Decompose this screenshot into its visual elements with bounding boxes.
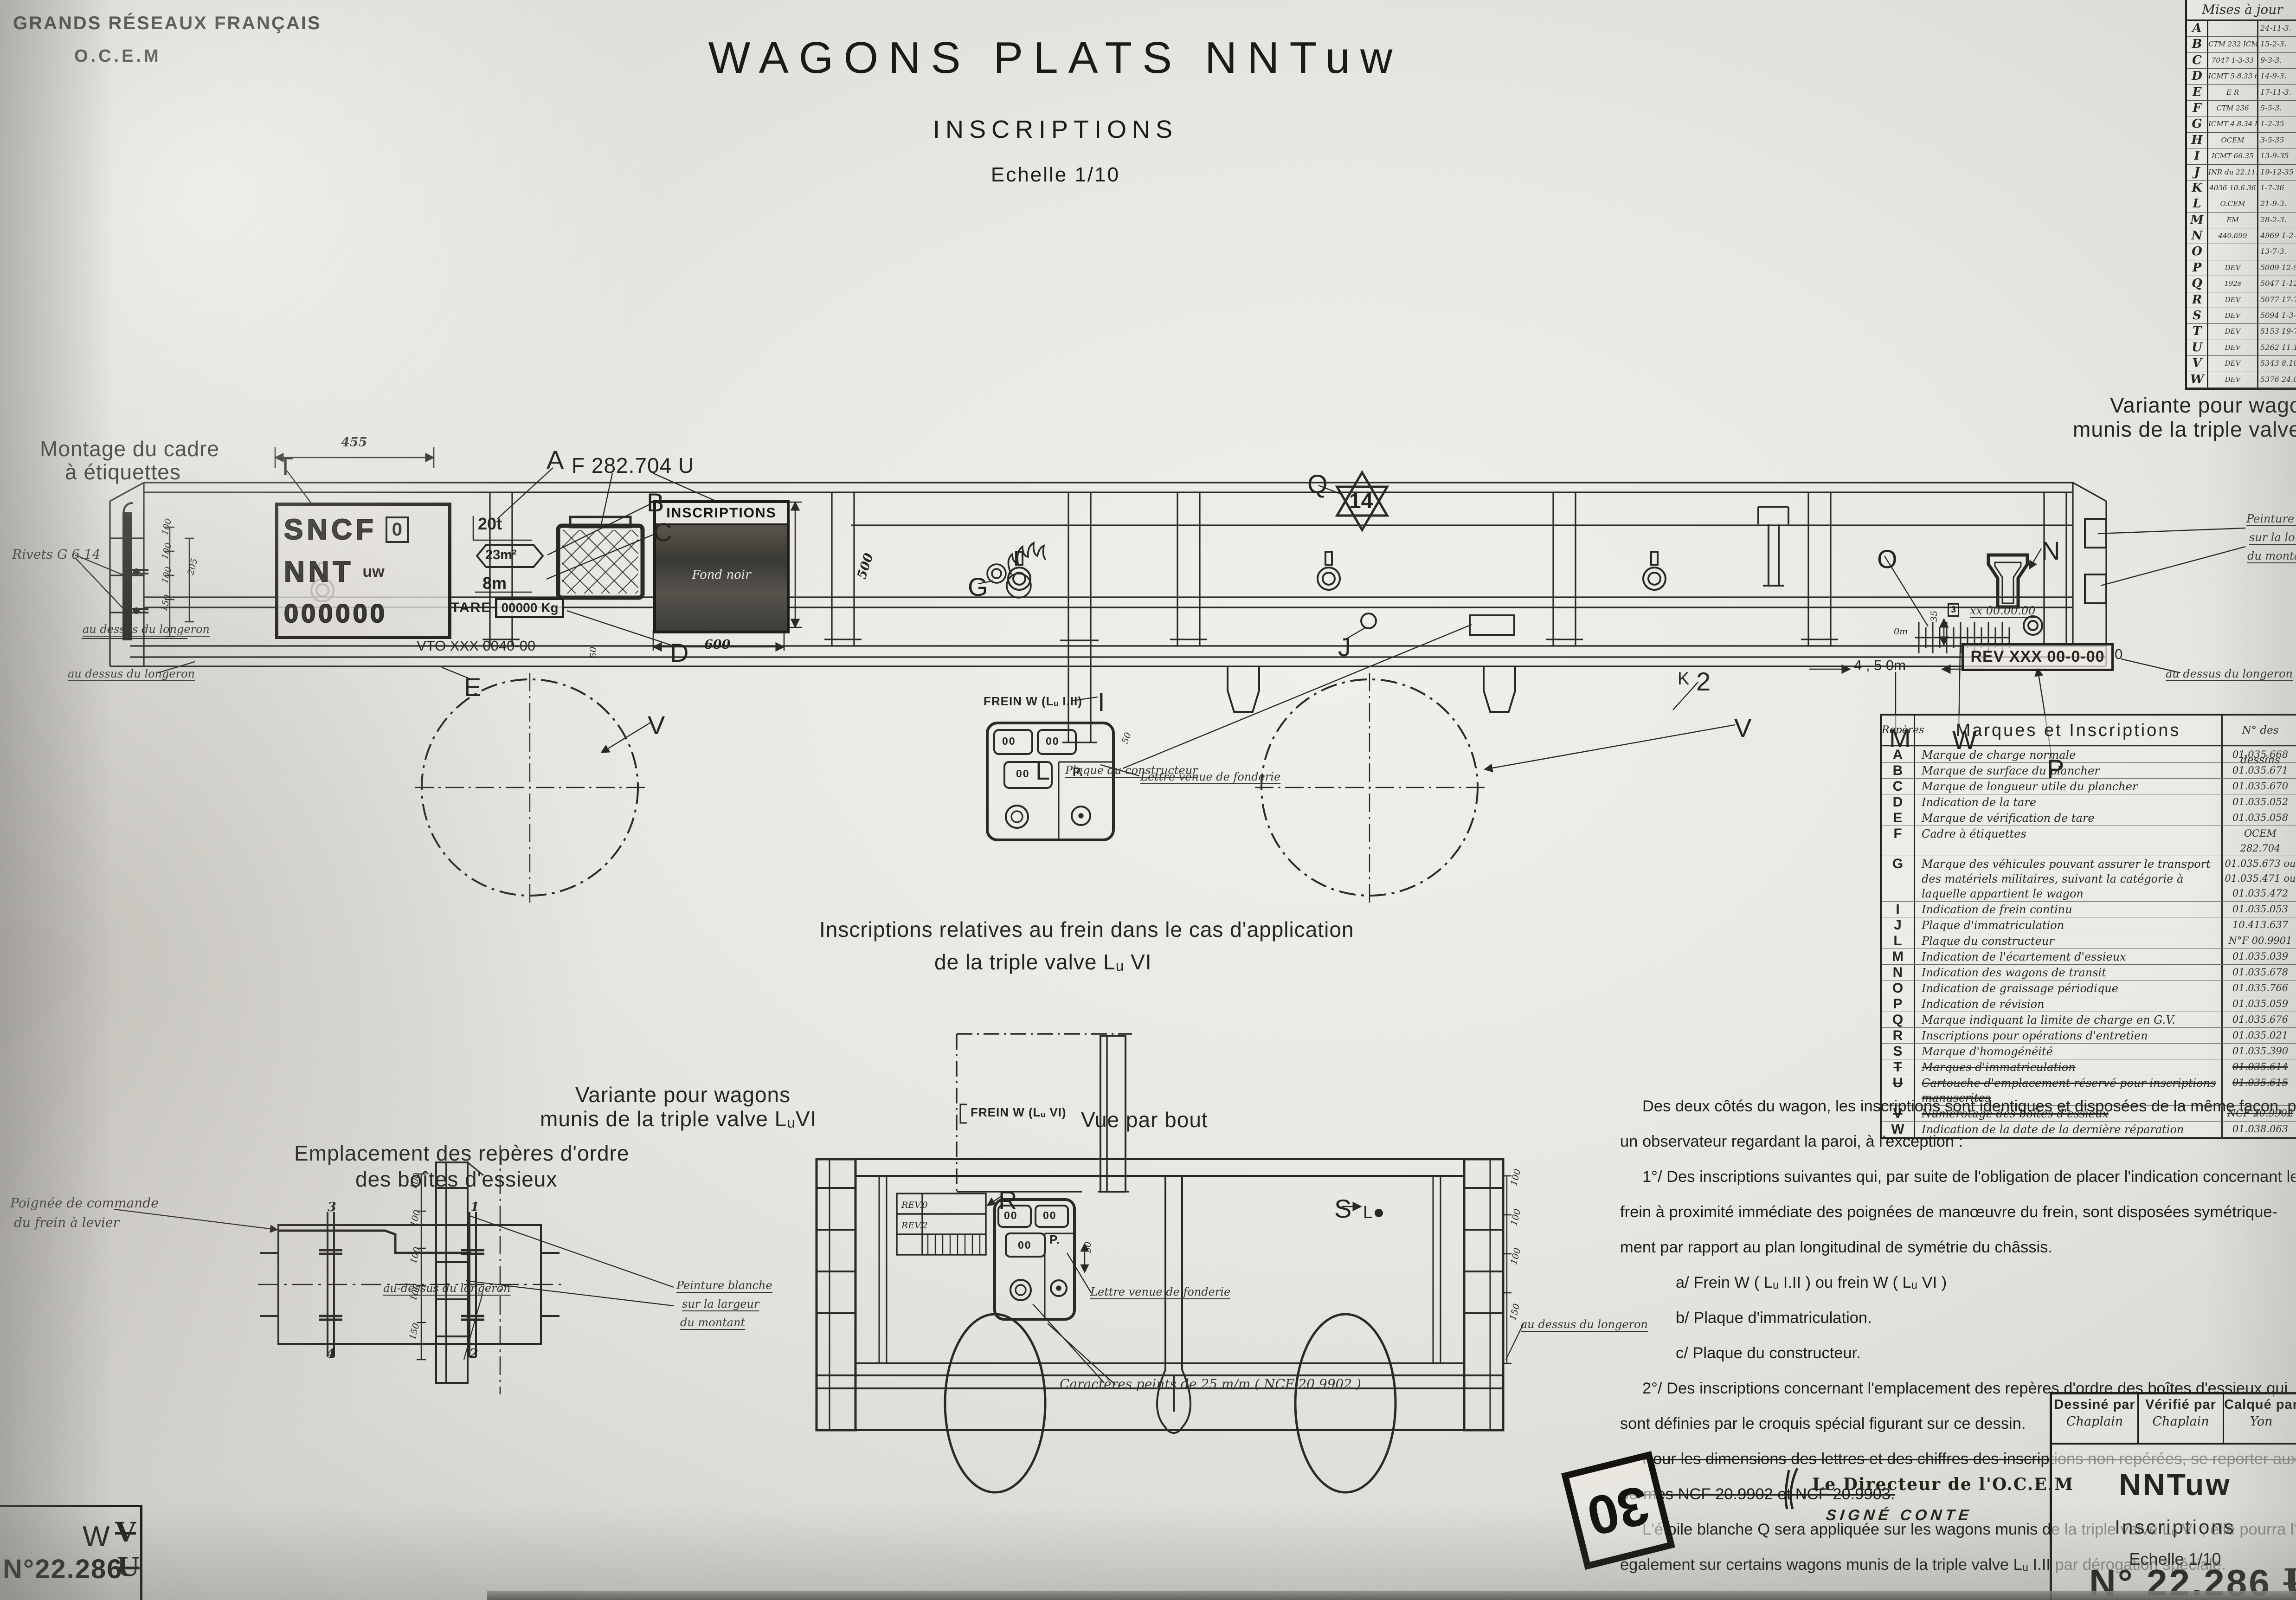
marques-row-label: Indication de l'écartement d'essieux: [1915, 949, 2223, 964]
sheet: GRANDS RÉSEAUX FRANÇAIS O.C.E.M WAGONS P…: [0, 0, 2296, 1600]
annotation-label: sur la largeur: [682, 1297, 759, 1310]
annotation-label: L: [1363, 1203, 1373, 1222]
marques-row-repere: S: [1882, 1044, 1915, 1059]
marques-row-label: Inscriptions pour opérations d'entretien: [1915, 1028, 2223, 1043]
annotation-text: Montage du cadre: [40, 436, 219, 461]
annotation-label: Q: [1307, 469, 1328, 498]
maj-row-date: 13-9-35: [2258, 148, 2296, 164]
annotation-text: 00: [1002, 735, 1016, 748]
marques-row: T Marques d'immatriculation 01.035.614: [1882, 1059, 2296, 1075]
maj-row: E E R 17-11-3.: [2187, 85, 2296, 101]
annotation-label: REV.0: [901, 1200, 928, 1210]
marques-row-repere: C: [1882, 779, 1915, 794]
annotation-label: P.: [1073, 765, 1083, 779]
marques-row: L Plaque du constructeur N°F 00.9901: [1882, 933, 2296, 949]
drawn-by-cell: Dessiné par Chaplain: [2052, 1394, 2139, 1443]
annotation-text: O: [1877, 544, 1897, 574]
org-name: GRANDS RÉSEAUX FRANÇAIS: [13, 13, 322, 34]
annotation-text: REV.0: [901, 1200, 928, 1210]
tare-label: TARE: [451, 600, 491, 616]
marques-row-number: 01.035.039: [2223, 949, 2296, 964]
annotation-text: Peinture blanche: [2246, 512, 2296, 525]
marques-row-number: 01.035.053: [2223, 902, 2296, 917]
marques-row-label: Marque de longueur utile du plancher: [1915, 779, 2223, 794]
annotation-label: 00: [1016, 768, 1030, 780]
maj-row-date: 5077 17-7-3.: [2258, 292, 2296, 308]
marques-row-label: Marque d'homogénéité: [1915, 1044, 2223, 1059]
notes-line: b/ Plaque d'immatriculation.: [1620, 1300, 2296, 1335]
maj-row-letter: Q: [2187, 276, 2208, 291]
maj-row: F CTM 236 5-5-3.: [2187, 101, 2296, 116]
annotation-text: 35: [1929, 611, 1939, 622]
marques-row-repere: P: [1882, 996, 1915, 1012]
annotation-label: FREIN W (Lᵤ VI): [971, 1105, 1067, 1119]
signature-title: Le Directeur de l'O.C.E.M: [1812, 1475, 2074, 1494]
annotation-label: Caractères peints de 25 m/m ( NCF 20.990…: [1060, 1376, 1361, 1392]
annotation-text: N: [2041, 535, 2060, 566]
annotation-text: xx 00.00.00: [1970, 604, 2036, 617]
traced-by-cell: Calqué par Yon: [2224, 1394, 2296, 1443]
marques-row-repere: M: [1882, 949, 1915, 964]
maj-row-date: 5094 1-3-3.: [2258, 308, 2296, 323]
notes-line-text: 1°/ Des inscriptions suivantes qui, par …: [1642, 1168, 2296, 1186]
maj-row-ref: DEV: [2208, 260, 2258, 276]
plate-series: NNT: [284, 555, 354, 588]
annotation-text: 50: [1083, 1242, 1093, 1253]
marques-row-number: 01.035.670: [2223, 779, 2296, 794]
notes-line: Des deux côtés du wagon, les inscription…: [1620, 1089, 2296, 1124]
sncf-plate: SNCF0 NNTuw 000000: [275, 503, 451, 639]
signature-signed: SIGNÉ CONTE: [1825, 1506, 1973, 1524]
marques-row-repere: L: [1882, 933, 1915, 948]
annotation-label: R: [998, 1186, 1017, 1215]
maj-table-body: A 24-11-3. B CTM 232 ICMT 26.1.32 15-2-3…: [2187, 21, 2296, 388]
corner-number-box: W V N°22.286 U: [0, 1505, 142, 1600]
montage-detail: [75, 503, 194, 639]
annotation-text: du montant: [2247, 549, 2296, 562]
maj-row: Q 192s 5047 1-12-3.: [2187, 276, 2296, 292]
annotation-label: au dessus du longeron: [2166, 667, 2293, 680]
annotation-label: E: [464, 672, 481, 702]
marques-row-repere: D: [1882, 794, 1915, 810]
annotation-text: 4 , 5 0m: [1854, 657, 1906, 674]
notes-line: c/ Plaque du constructeur.: [1620, 1335, 2296, 1371]
annotation-label: 14: [1349, 489, 1373, 513]
corner-drawing-number: N°22.286: [3, 1554, 122, 1585]
annotation-text: 00: [1018, 1239, 1032, 1252]
annotation-label: P: [2047, 754, 2064, 783]
annotation-text: 455: [341, 435, 367, 450]
annotation-label: 455: [341, 435, 367, 450]
marques-row-repere: O: [1882, 981, 1915, 996]
maj-row-letter: M: [2187, 213, 2208, 228]
maj-row-date: 3-5-35: [2258, 133, 2296, 148]
maj-row-ref: 440.699: [2208, 228, 2258, 244]
inscriptions-panel-note: Fond noir: [656, 568, 787, 582]
marques-row: D Indication de la tare 01.035.052: [1882, 794, 2296, 810]
annotation-text: V: [1734, 713, 1751, 743]
annotation-text: Caractères peints de 25 m/m ( NCF 20.990…: [1060, 1376, 1361, 1392]
notes-line-text: b/ Plaque d'immatriculation.: [1676, 1309, 1872, 1327]
maj-row-ref: [2208, 21, 2258, 36]
annotation-text: Poignée de commande: [10, 1195, 159, 1211]
marques-row: O Indication de graissage périodique 01.…: [1882, 981, 2296, 996]
marques-row-number: 01.035.058: [2223, 810, 2296, 826]
annotation-label: 3: [328, 1200, 336, 1214]
maj-row-date: 5376 24.8.43: [2258, 372, 2296, 387]
annotation-text: L: [1363, 1203, 1373, 1223]
maj-row-ref: 4036 10.6.36: [2208, 181, 2258, 196]
maj-row: L O.CEM 21-9-3.: [2187, 196, 2296, 212]
annotation-text: 0m: [1894, 626, 1908, 637]
annotation-text: du frein à levier: [14, 1215, 119, 1230]
annotation-text: G: [968, 572, 988, 602]
checked-by-name: Chaplain: [2139, 1414, 2223, 1429]
marques-row: N Indication des wagons de transit 01.03…: [1882, 965, 2296, 981]
maj-row-date: 13-7-3.: [2258, 244, 2296, 259]
marques-table-body: A Marque de charge normale 01.035.668 B …: [1882, 747, 2296, 1137]
annotation-label: à étiquettes: [65, 460, 181, 484]
marques-row: P Indication de révision 01.035.059: [1882, 996, 2296, 1012]
annotation-text: Peinture blanche: [676, 1279, 772, 1292]
maj-row-ref: ICMT 5.8.33 654 2.9.33: [2208, 69, 2258, 84]
annotation-label: W: [1952, 725, 1977, 755]
annotation-text: 50: [588, 647, 598, 658]
maj-row-ref: ICMT 66.35: [2208, 148, 2258, 164]
maj-row-letter: U: [2187, 340, 2208, 355]
maj-row-date: 24-11-3.: [2258, 21, 2296, 36]
annotation-text: 00: [1046, 735, 1060, 748]
plate-railway: SNCF: [284, 513, 377, 546]
marques-row-label: Plaque d'immatriculation: [1915, 917, 2223, 933]
marques-row-label: Marques d'immatriculation: [1915, 1059, 2223, 1075]
annotation-label: Variante pour wagons: [575, 1083, 791, 1107]
annotation-label: 00: [1018, 1239, 1032, 1251]
annotation-label: 23m²: [485, 548, 517, 562]
annotation-label: K: [1678, 669, 1689, 689]
annotation-label: P.: [1049, 1232, 1060, 1246]
annotation-text: Rivets G 6.14: [12, 547, 101, 562]
annotation-label: L: [1035, 756, 1050, 785]
annotation-text: 600: [704, 638, 730, 652]
annotation-text: 8m: [482, 574, 507, 593]
annotation-text: T: [277, 451, 293, 481]
annotation-label: munis de la triple valve Lᵤv: [2073, 417, 2296, 441]
annotation-text: au dessus du longeron: [83, 623, 210, 636]
marques-row-repere: B: [1882, 763, 1915, 778]
annotation-label: 20t: [478, 514, 502, 533]
checked-by-cell: Vérifié par Chaplain: [2139, 1394, 2224, 1443]
notes-line: un observateur regardant la paroi, à l'e…: [1620, 1124, 2296, 1159]
marques-row-repere: T: [1882, 1059, 1915, 1075]
annotation-text: 00: [1043, 1209, 1057, 1222]
annotation-text: E: [464, 672, 481, 702]
notes-line: ment par rapport au plan longitudinal de…: [1620, 1230, 2296, 1265]
annotation-label: Poignée de commande: [10, 1195, 159, 1211]
maj-row-date: 5153 19-7-3.: [2258, 324, 2296, 339]
annotation-label: 4 , 5 0m: [1854, 657, 1906, 673]
marques-row-number: 01.035.614: [2223, 1059, 2296, 1075]
marques-row-number: 01.035.021: [2223, 1028, 2296, 1043]
maj-row: I ICMT 66.35 13-9-35: [2187, 148, 2296, 164]
maj-row-date: 5009 12-9-3.: [2258, 260, 2296, 276]
annotation-label: Variante pour wagons: [2110, 393, 2296, 417]
maj-row-date: 28-2-3.: [2258, 213, 2296, 228]
marques-row-repere: G: [1882, 856, 1915, 901]
annotation-text: au dessus du longeron: [68, 667, 195, 680]
annotation-text: du montant: [680, 1316, 745, 1329]
maj-row-letter: W: [2187, 372, 2208, 387]
annotation-label: N: [2041, 536, 2060, 565]
annotation-label: 2: [469, 1347, 478, 1361]
maj-row-letter: T: [2187, 324, 2208, 339]
annotation-text: des boîtes d'essieux: [355, 1167, 557, 1192]
marques-row-repere: I: [1882, 902, 1915, 917]
marques-row: G Marque des véhicules pouvant assurer l…: [1882, 856, 2296, 902]
maj-row-letter: C: [2187, 53, 2208, 68]
annotation-label: T: [277, 452, 293, 481]
maj-row: H OCEM 3-5-35: [2187, 133, 2296, 148]
annotation-text: 1: [470, 1200, 479, 1214]
inscriptions-panel-title: INSCRIPTIONS: [656, 503, 787, 525]
annotation-text: K: [1678, 669, 1689, 689]
notes-line-text: a/ Frein W ( Lᵤ I.II ) ou frein W ( Lᵤ V…: [1676, 1274, 1947, 1291]
maj-row-date: 5-5-3.: [2258, 101, 2296, 116]
maj-row-ref: INR du 22.11.35: [2208, 165, 2258, 180]
notes-line-text: frein à proximité immédiate des poignées…: [1620, 1203, 2277, 1221]
corner-struck-number-letter: U: [117, 1552, 140, 1582]
annotation-text: 3: [1948, 603, 1959, 617]
annotation-text: Lettre venue de fonderie: [1090, 1285, 1230, 1298]
annotation-label: 2: [1696, 667, 1711, 696]
marques-row-number: 01.035.390: [2223, 1044, 2296, 1059]
annotation-label: D: [670, 638, 688, 667]
annotation-label: du frein à levier: [14, 1215, 119, 1230]
annotation-text: Emplacement des repères d'ordre: [294, 1141, 629, 1166]
annotation-label: I: [1098, 687, 1105, 716]
marques-row: J Plaque d'immatriculation 10.413.637: [1882, 917, 2296, 933]
rev-box: REV XXX 00-0-00: [1962, 643, 2114, 671]
notes-line: a/ Frein W ( Lᵤ I.II ) ou frein W ( Lᵤ V…: [1620, 1265, 2296, 1300]
tare-mark: TARE 00000 Kg: [451, 598, 564, 618]
notes-line-text: Des deux côtés du wagon, les inscription…: [1642, 1097, 2296, 1115]
annotation-text: REV.2: [901, 1220, 928, 1231]
annotation-label: V: [648, 710, 665, 740]
maj-row: R DEV 5077 17-7-3.: [2187, 292, 2296, 308]
maj-row-letter: G: [2187, 116, 2208, 132]
annotation-text: 00: [1016, 768, 1030, 780]
maj-row: P DEV 5009 12-9-3.: [2187, 260, 2296, 276]
marques-row-repere: J: [1882, 917, 1915, 933]
annotation-label: 50: [1083, 1242, 1093, 1253]
annotation-text: FREIN W (Lᵤ I.II): [984, 694, 1082, 709]
annotation-label: sur la longueur: [2249, 531, 2296, 544]
annotation-text: 14: [1349, 488, 1373, 513]
maj-row-ref: CTM 236: [2208, 101, 2258, 116]
maj-row-date: 17-11-3.: [2258, 85, 2296, 100]
marques-row-number: 01.035.676: [2223, 1012, 2296, 1027]
marques-row-label: Indication de la tare: [1915, 794, 2223, 810]
notes-line-text: sont définies par le croquis spécial fig…: [1620, 1415, 2026, 1432]
annotation-label: FREIN W (Lᵤ I.II): [984, 694, 1082, 708]
drawn-by-label: Dessiné par: [2052, 1397, 2137, 1413]
maj-row: K 4036 10.6.36 1-7-36: [2187, 181, 2296, 196]
maj-row-letter: V: [2187, 356, 2208, 371]
maj-row-letter: P: [2187, 260, 2208, 276]
marques-row-label: Indication de graissage périodique: [1915, 981, 2223, 996]
maj-row-date: 14-9-3.: [2258, 69, 2296, 84]
marques-row-number: 01.035.673 ou 01.035.471 ou 01.035.472: [2223, 856, 2296, 901]
maj-row: G ICMT 4.8.34 ICMT 22.11.34 1-2-35: [2187, 116, 2296, 132]
marques-row-number: 01.035.766: [2223, 981, 2296, 996]
maj-row-letter: I: [2187, 148, 2208, 164]
marques-row: F Cadre à étiquettes OCEM 282.704: [1882, 826, 2296, 856]
annotation-label: 4: [327, 1347, 335, 1361]
annotation-text: munis de la triple valve Lᵤv: [2073, 417, 2296, 442]
annotation-text: C: [653, 517, 672, 547]
annotation-label: B: [647, 488, 664, 517]
annotation-text: 0: [2115, 646, 2122, 663]
maj-row-date: 5262 11.11.40: [2258, 340, 2296, 355]
annotation-label: Rivets G 6.14: [12, 547, 101, 562]
drawing-title: WAGONS PLATS NNTuw: [0, 32, 2111, 84]
annotation-label: F 282.704 U: [572, 453, 694, 477]
annotation-label: xx 00.00.00: [1970, 604, 2036, 617]
annotation-text: Inscriptions relatives au frein dans le …: [819, 917, 1354, 942]
maj-row-date: 19-12-35: [2258, 165, 2296, 180]
corner-index-letter: W: [83, 1520, 110, 1553]
plate-series-suffix: uw: [362, 563, 384, 581]
annotation-text: 2: [1696, 666, 1711, 697]
marques-row-label: Indication de révision: [1915, 996, 2223, 1012]
notes-line-text: un observateur regardant la paroi, à l'e…: [1620, 1133, 1963, 1150]
notes-line-text: ment par rapport au plan longitudinal de…: [1620, 1239, 2052, 1256]
maj-row-date: 1-2-35: [2258, 116, 2296, 132]
marques-row-number: 10.413.637: [2223, 917, 2296, 933]
annotation-text: au dessus du longeron: [2166, 667, 2293, 680]
annotation-label: J: [1338, 632, 1351, 662]
maj-row-date: 5343 8.10.42: [2258, 356, 2296, 371]
drawing-subtitle: INSCRIPTIONS: [0, 115, 2111, 144]
constructor-plate: [1470, 615, 1514, 635]
annotation-label: au-dessus du longeron: [383, 1282, 510, 1295]
maj-row: S DEV 5094 1-3-3.: [2187, 308, 2296, 324]
maj-row: A 24-11-3.: [2187, 21, 2296, 37]
title-block: Dessiné par Chaplain Vérifié par Chaplai…: [2050, 1392, 2296, 1600]
annotation-label: Peinture blanche: [676, 1279, 772, 1292]
maj-row: J INR du 22.11.35 19-12-35: [2187, 165, 2296, 181]
checked-by-label: Vérifié par: [2139, 1397, 2223, 1413]
marques-row-number: 01.035.671: [2223, 763, 2296, 778]
annotation-label: 0: [2115, 646, 2122, 662]
annotation-text: Variante pour wagons: [2110, 393, 2296, 418]
stamp-number: 30: [1582, 1473, 1655, 1548]
annotation-label: 50: [588, 647, 598, 658]
annotation-text: munis de la triple valve LᵤVI: [540, 1106, 817, 1131]
maj-row-date: 21-9-3.: [2258, 196, 2296, 212]
annotation-label: VTO XXX 0040-00: [417, 638, 535, 654]
maj-row-date: 15-2-3.: [2258, 37, 2296, 52]
maj-row-ref: DEV: [2208, 372, 2258, 387]
annotation-label: 0m: [1894, 626, 1908, 637]
maj-row-date: 9-3-3.: [2258, 53, 2296, 68]
annotation-label: C: [653, 517, 672, 547]
title-block-subject: Inscriptions: [2052, 1516, 2296, 1538]
annotation-label: 8m: [482, 574, 507, 593]
marques-row-repere: E: [1882, 810, 1915, 826]
marques-row-repere: Q: [1882, 1012, 1915, 1027]
annotation-label: Lettre venue de fonderie: [1140, 770, 1280, 783]
title-block-series: NNTuw: [2052, 1467, 2296, 1502]
drawing-scale: Echelle 1/10: [0, 163, 2111, 187]
annotation-text: 20t: [478, 514, 502, 534]
annotation-text: à étiquettes: [65, 459, 181, 484]
annotation-label: de la triple valve Lᵤ VI: [934, 950, 1152, 974]
annotation-text: Q: [1307, 469, 1328, 499]
annotation-label: Lettre venue de fonderie: [1090, 1285, 1230, 1298]
maj-row-ref: DEV: [2208, 324, 2258, 339]
annotation-text: 2: [469, 1347, 478, 1361]
annotation-label: 35: [1929, 611, 1939, 622]
marques-row-repere: F: [1882, 826, 1915, 856]
marques-row: R Inscriptions pour opérations d'entreti…: [1882, 1028, 2296, 1044]
maj-row-ref: DEV: [2208, 308, 2258, 323]
annotation-label: V: [1734, 713, 1751, 742]
marques-row-repere: N: [1882, 965, 1915, 980]
maj-row-letter: O: [2187, 244, 2208, 259]
annotation-text: S: [1334, 1194, 1351, 1224]
annotation-text: P: [2047, 754, 2064, 784]
annotation-text: Vue par bout: [1081, 1107, 1208, 1132]
maj-row-ref: CTM 232 ICMT 26.1.32: [2208, 37, 2258, 52]
plate-number: 000000: [284, 598, 387, 628]
marques-row: M Indication de l'écartement d'essieux 0…: [1882, 949, 2296, 965]
maj-row-letter: A: [2187, 21, 2208, 36]
annotation-text: I: [1098, 687, 1105, 717]
drawn-by-name: Chaplain: [2052, 1414, 2137, 1429]
annotation-label: Emplacement des repères d'ordre: [294, 1141, 629, 1165]
annotation-text: M: [1889, 723, 1911, 753]
maj-row-letter: H: [2187, 133, 2208, 148]
maj-row-letter: F: [2187, 101, 2208, 116]
marques-row-label: Marque de surface du plancher: [1915, 763, 2223, 778]
annotation-text: V: [648, 710, 665, 740]
annotation-text: 23m²: [485, 548, 517, 563]
marques-row-label: Cadre à étiquettes: [1915, 826, 2223, 856]
maj-row-letter: N: [2187, 228, 2208, 244]
marques-row: B Marque de surface du plancher 01.035.6…: [1882, 763, 2296, 779]
annotation-label: 00: [1043, 1209, 1057, 1221]
maj-table-title: Mises à jour: [2187, 0, 2296, 21]
annotation-label: du montant: [680, 1316, 745, 1329]
maj-row: C 7047 1-3-33 9-3-3.: [2187, 53, 2296, 69]
notes-line: 1°/ Des inscriptions suivantes qui, par …: [1620, 1159, 2296, 1194]
marques-row-label: Plaque du constructeur: [1915, 933, 2223, 948]
annotation-text: J: [1338, 632, 1351, 662]
maj-row: D ICMT 5.8.33 654 2.9.33 14-9-3.: [2187, 69, 2296, 84]
annotation-text: sur la longueur: [2249, 531, 2296, 544]
maj-row: V DEV 5343 8.10.42: [2187, 356, 2296, 372]
annotation-text: R: [998, 1185, 1017, 1215]
maj-row: N 440.699 4969 1-2-38: [2187, 228, 2296, 244]
maj-row-letter: J: [2187, 165, 2208, 180]
annotation-label: au dessus du longeron: [83, 623, 210, 636]
annotation-label: 1: [470, 1200, 479, 1214]
maj-row-ref: EM: [2208, 213, 2258, 228]
maj-row-ref: DEV: [2208, 356, 2258, 371]
notes-line: frein à proximité immédiate des poignées…: [1620, 1194, 2296, 1230]
annotation-label: 00: [1046, 735, 1060, 747]
